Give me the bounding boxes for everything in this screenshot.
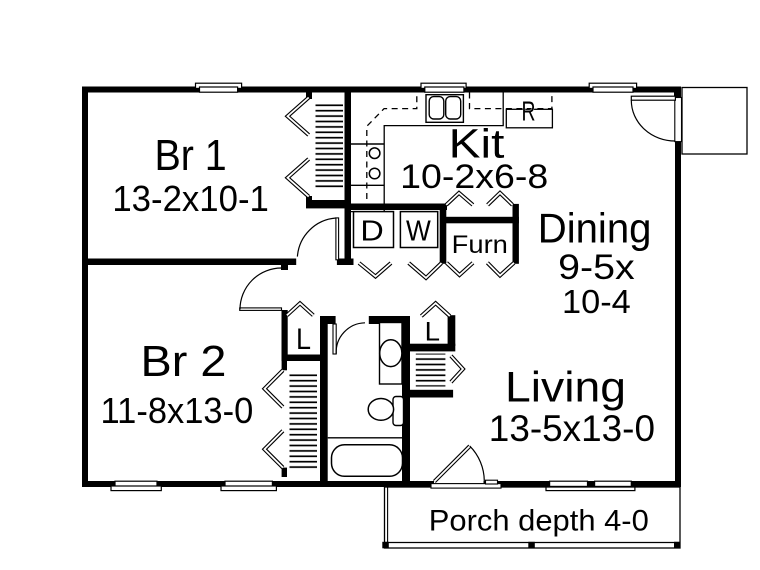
svg-text:D: D [360, 216, 383, 248]
svg-text:10-2x6-8: 10-2x6-8 [400, 158, 548, 196]
svg-text:R: R [522, 96, 536, 127]
svg-text:9-5x: 9-5x [558, 248, 635, 287]
svg-text:Br 1: Br 1 [154, 131, 226, 180]
svg-text:11-8x13-0: 11-8x13-0 [101, 390, 254, 431]
svg-text:Porch depth 4-0: Porch depth 4-0 [429, 505, 649, 538]
svg-text:W: W [406, 216, 431, 248]
svg-text:Furn: Furn [452, 231, 508, 259]
svg-text:Living: Living [505, 363, 626, 411]
svg-text:L: L [425, 316, 440, 346]
svg-text:13-5x13-0: 13-5x13-0 [489, 408, 655, 449]
svg-text:13-2x10-1: 13-2x10-1 [112, 178, 269, 219]
svg-text:Dining: Dining [538, 204, 652, 251]
svg-text:10-4: 10-4 [562, 283, 631, 320]
svg-text:L: L [296, 323, 311, 356]
svg-text:Br 2: Br 2 [141, 337, 227, 386]
